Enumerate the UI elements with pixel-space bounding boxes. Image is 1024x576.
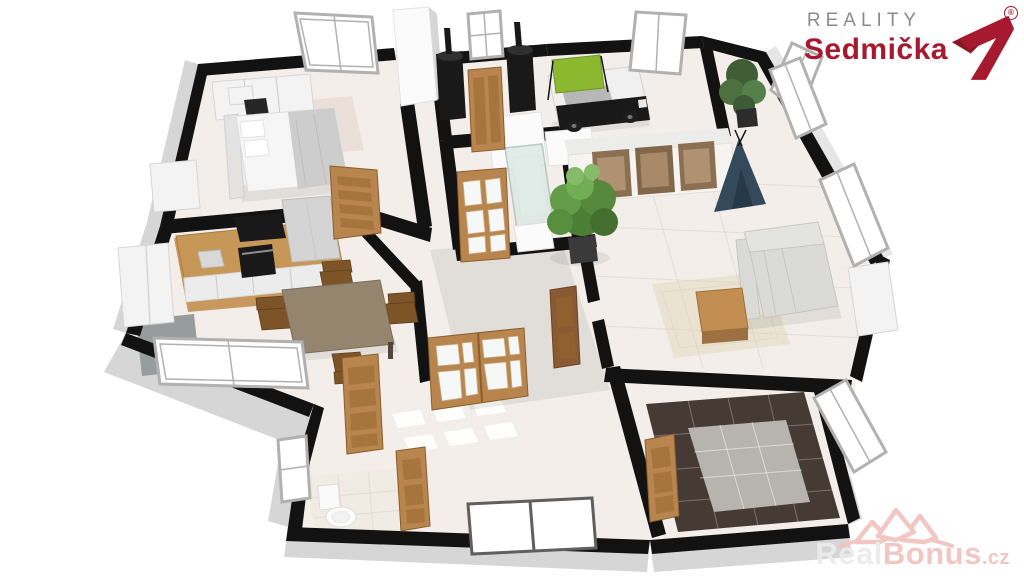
watermark-text: RealBonus.cz <box>815 536 1010 572</box>
french-double-door <box>428 328 528 410</box>
utility-door <box>468 67 505 152</box>
glazed-interior-door <box>457 168 510 262</box>
brand-reality-label: REALITY <box>804 10 948 32</box>
brand-seven-icon: ® <box>950 6 1016 84</box>
kids-room-window <box>630 12 686 74</box>
wc-window <box>278 436 310 502</box>
dining-chair <box>256 296 285 310</box>
screenshot-root: REALITY Sedmička ® RealBonus.cz <box>0 0 1024 576</box>
entrance-window <box>468 498 596 554</box>
coffee-table <box>696 288 748 344</box>
car-bed-canopy <box>552 55 604 93</box>
agency-logo: REALITY Sedmička ® <box>804 6 1016 84</box>
boiler <box>436 51 466 121</box>
kitchen-window <box>154 338 308 388</box>
oven <box>238 244 276 278</box>
watermark-cz: .cz <box>982 547 1010 569</box>
registered-mark: ® <box>1004 6 1018 20</box>
realbonus-watermark: RealBonus.cz <box>774 502 1014 576</box>
wc-door <box>396 447 430 531</box>
bedroom-window <box>295 13 378 73</box>
dining-door <box>342 354 383 454</box>
agency-logo-text: REALITY Sedmička <box>804 10 948 67</box>
utility-window <box>468 11 503 59</box>
watermark-real: Real <box>815 536 882 571</box>
living-room-door <box>550 286 580 368</box>
cooktop <box>234 213 286 242</box>
brand-sedmicka-label: Sedmička <box>804 33 948 67</box>
boiler <box>506 45 536 113</box>
tall-white-cabinet <box>118 243 174 327</box>
sink <box>198 250 224 268</box>
bedroom-door <box>330 166 381 239</box>
watermark-bonus: Bonus <box>883 536 982 571</box>
floor-plan-render <box>0 0 1024 576</box>
bedside-cabinet <box>150 160 200 212</box>
terrace-room-door <box>645 434 679 522</box>
